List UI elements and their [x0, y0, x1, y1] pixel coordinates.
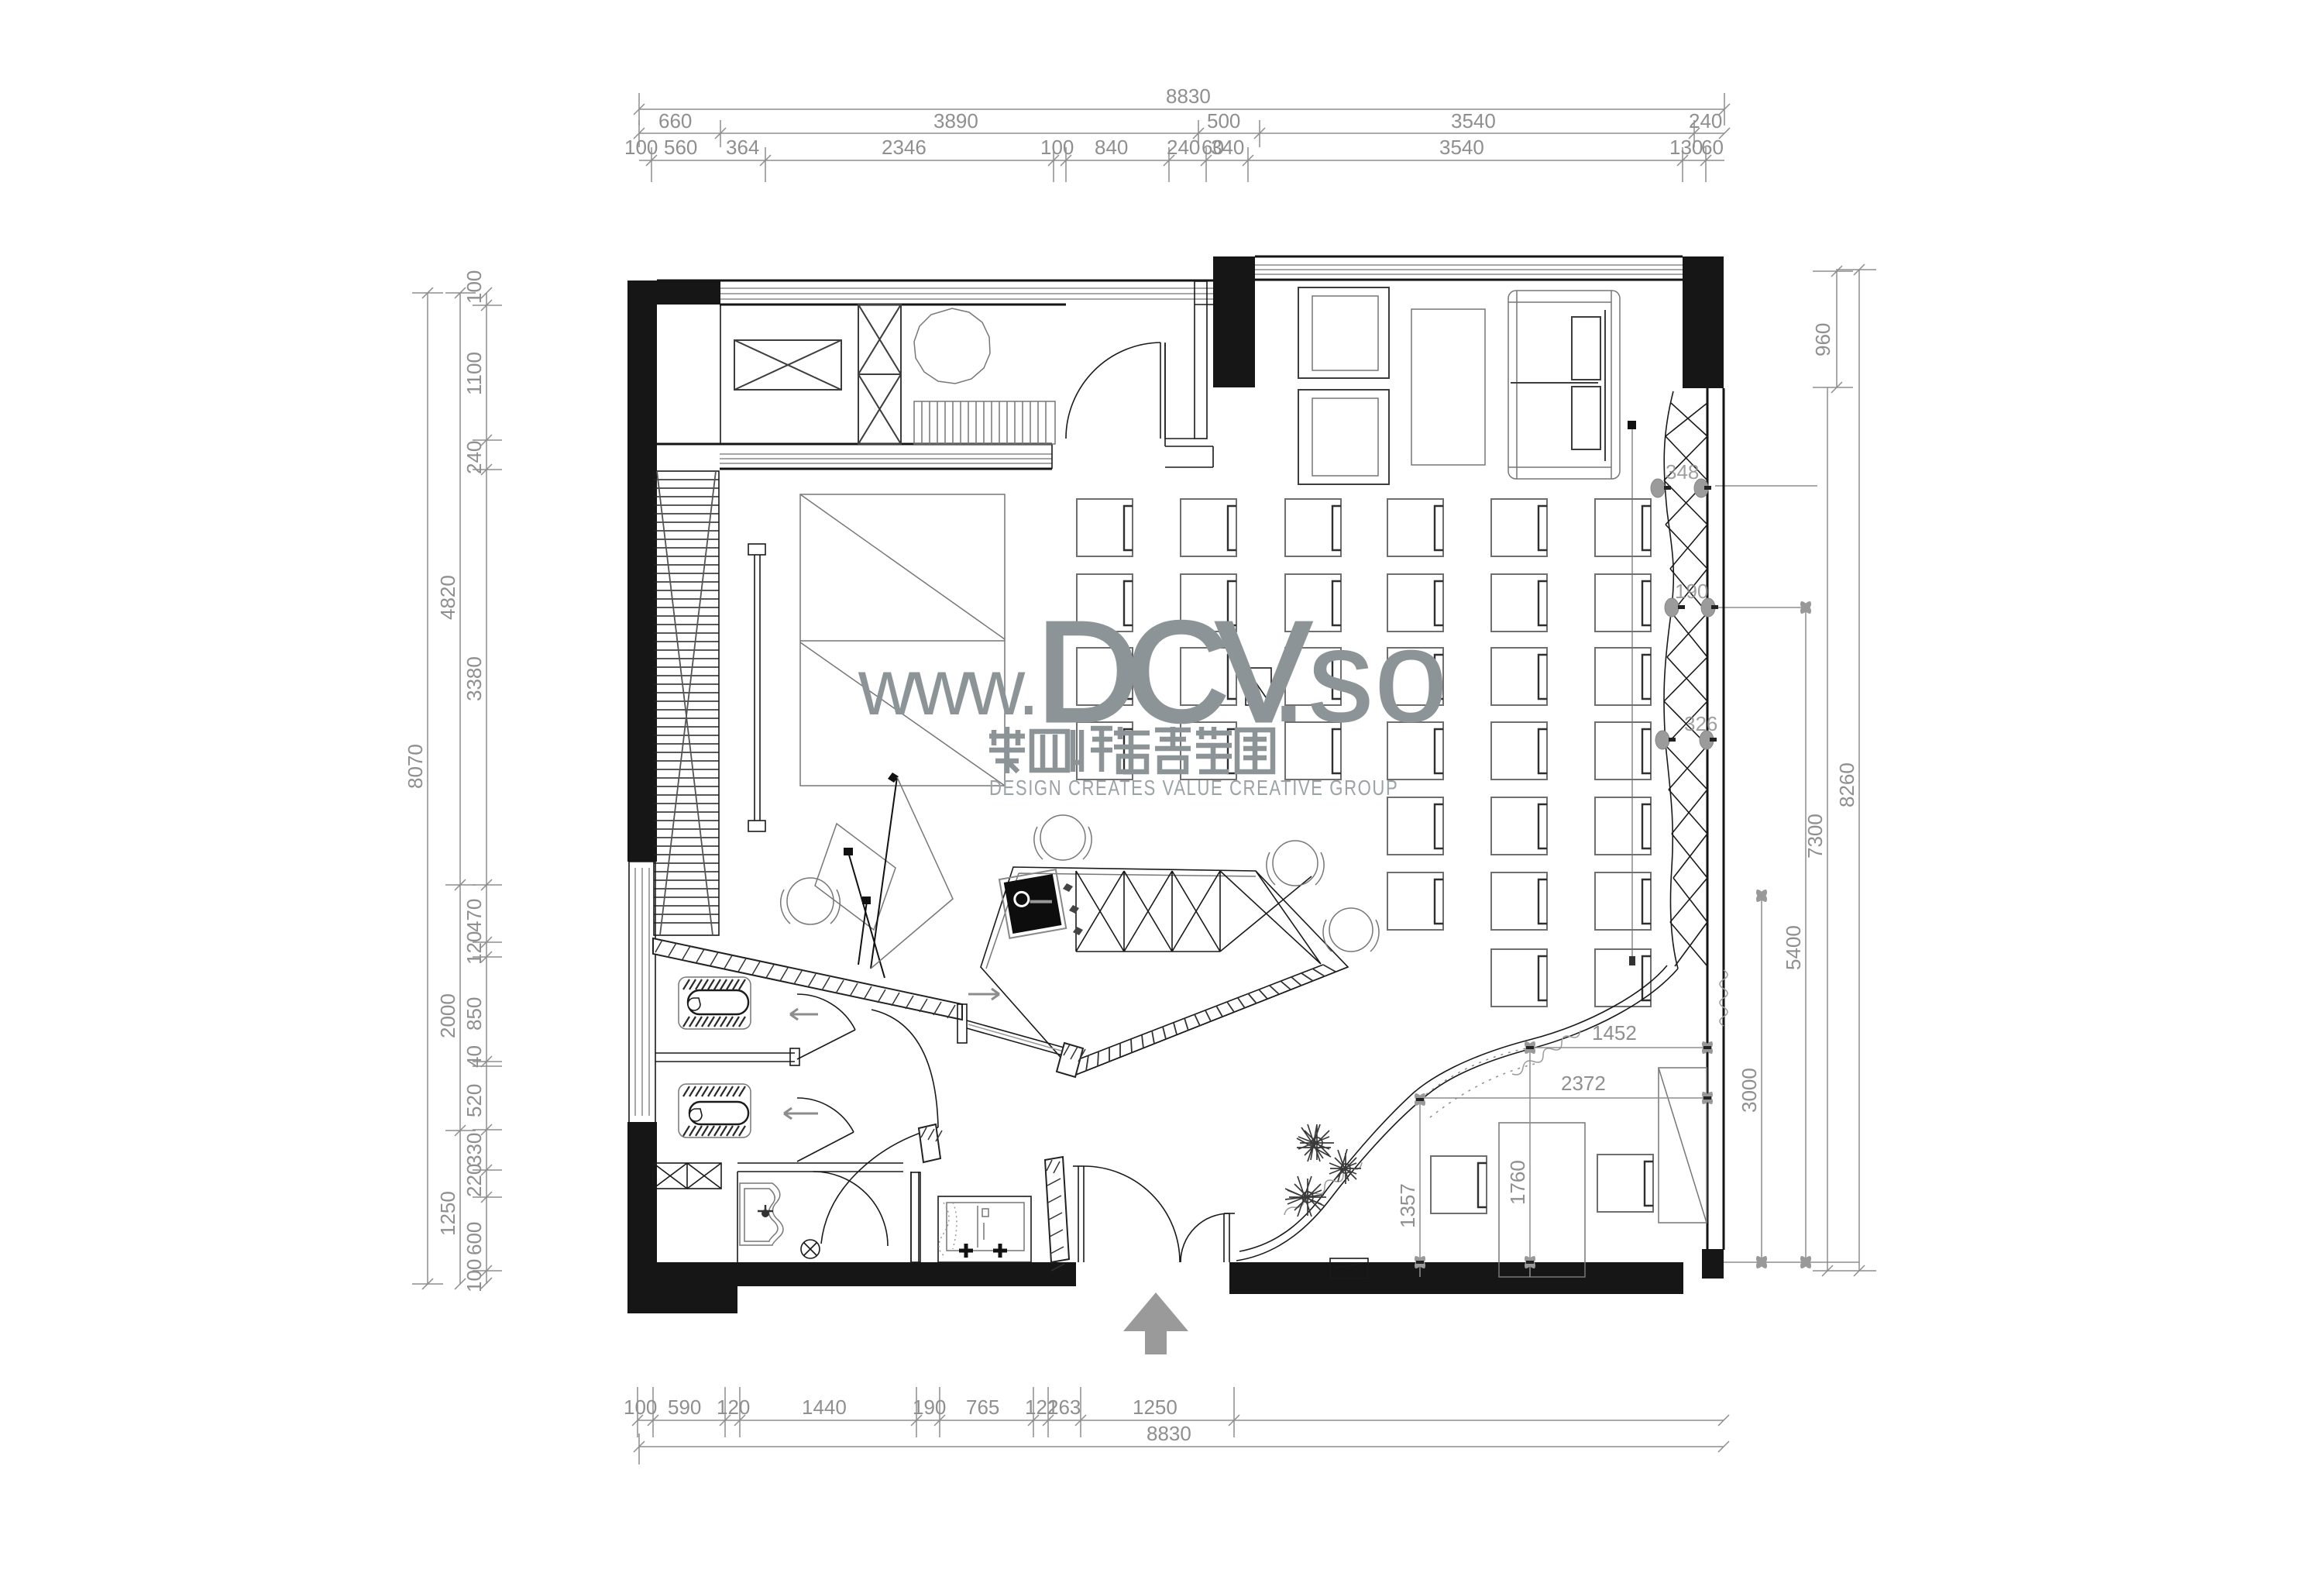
svg-text:8830: 8830	[1166, 84, 1211, 108]
svg-text:1250: 1250	[436, 1191, 459, 1236]
svg-text:330: 330	[462, 1133, 486, 1166]
svg-text:190: 190	[1675, 580, 1708, 603]
svg-text:263: 263	[1047, 1396, 1081, 1419]
svg-text:4820: 4820	[436, 575, 459, 620]
svg-text:840: 840	[1095, 136, 1128, 159]
svg-text:364: 364	[726, 136, 759, 159]
svg-text:240: 240	[462, 441, 486, 474]
svg-text:1440: 1440	[802, 1396, 847, 1419]
svg-text:1452: 1452	[1592, 1021, 1637, 1045]
svg-text:3890: 3890	[933, 109, 978, 132]
svg-text:100: 100	[462, 270, 486, 304]
svg-text:8070: 8070	[404, 744, 427, 789]
svg-text:340: 340	[1211, 136, 1244, 159]
svg-text:1357: 1357	[1396, 1183, 1419, 1228]
svg-text:560: 560	[664, 136, 697, 159]
svg-text:240: 240	[1689, 109, 1722, 132]
svg-text:470: 470	[462, 899, 486, 932]
svg-text:.so: .so	[1270, 603, 1449, 749]
svg-text:3540: 3540	[1439, 136, 1484, 159]
svg-text:www.: www.	[858, 642, 1037, 731]
svg-text:130: 130	[1669, 136, 1703, 159]
svg-text:60: 60	[1701, 136, 1724, 159]
svg-text:100: 100	[462, 1259, 486, 1292]
svg-text:960: 960	[1811, 323, 1834, 356]
svg-text:326: 326	[1684, 712, 1717, 735]
svg-text:8260: 8260	[1835, 762, 1858, 807]
svg-text:8830: 8830	[1147, 1422, 1191, 1445]
svg-text:1100: 1100	[462, 352, 486, 395]
svg-text:3380: 3380	[462, 656, 486, 701]
svg-text:3000: 3000	[1738, 1068, 1761, 1113]
svg-text:120: 120	[462, 931, 486, 965]
svg-text:1250: 1250	[1133, 1396, 1177, 1419]
svg-text:2346: 2346	[882, 136, 927, 159]
svg-text:190: 190	[913, 1396, 946, 1419]
svg-text:765: 765	[966, 1396, 999, 1419]
svg-text:850: 850	[462, 997, 486, 1031]
svg-text:40: 40	[462, 1045, 486, 1068]
svg-text:1760: 1760	[1506, 1160, 1529, 1205]
svg-text:348: 348	[1666, 460, 1699, 484]
svg-text:220: 220	[462, 1164, 486, 1197]
svg-text:DESIGN CREATES VALUE CREATIVE: DESIGN CREATES VALUE CREATIVE GROUP	[989, 776, 1398, 800]
svg-text:2372: 2372	[1561, 1072, 1606, 1095]
svg-text:240: 240	[1167, 136, 1200, 159]
svg-text:100: 100	[624, 136, 658, 159]
svg-text:3540: 3540	[1451, 109, 1496, 132]
svg-text:5400: 5400	[1782, 925, 1805, 970]
svg-text:100: 100	[624, 1396, 657, 1419]
svg-text:500: 500	[1207, 109, 1240, 132]
svg-text:660: 660	[658, 109, 692, 132]
svg-text:600: 600	[462, 1222, 486, 1255]
svg-text:2000: 2000	[436, 993, 459, 1038]
svg-text:520: 520	[462, 1084, 486, 1117]
svg-text:100: 100	[1040, 136, 1074, 159]
svg-text:7300: 7300	[1803, 814, 1827, 859]
svg-text:590: 590	[668, 1396, 701, 1419]
svg-text:120: 120	[717, 1396, 750, 1419]
